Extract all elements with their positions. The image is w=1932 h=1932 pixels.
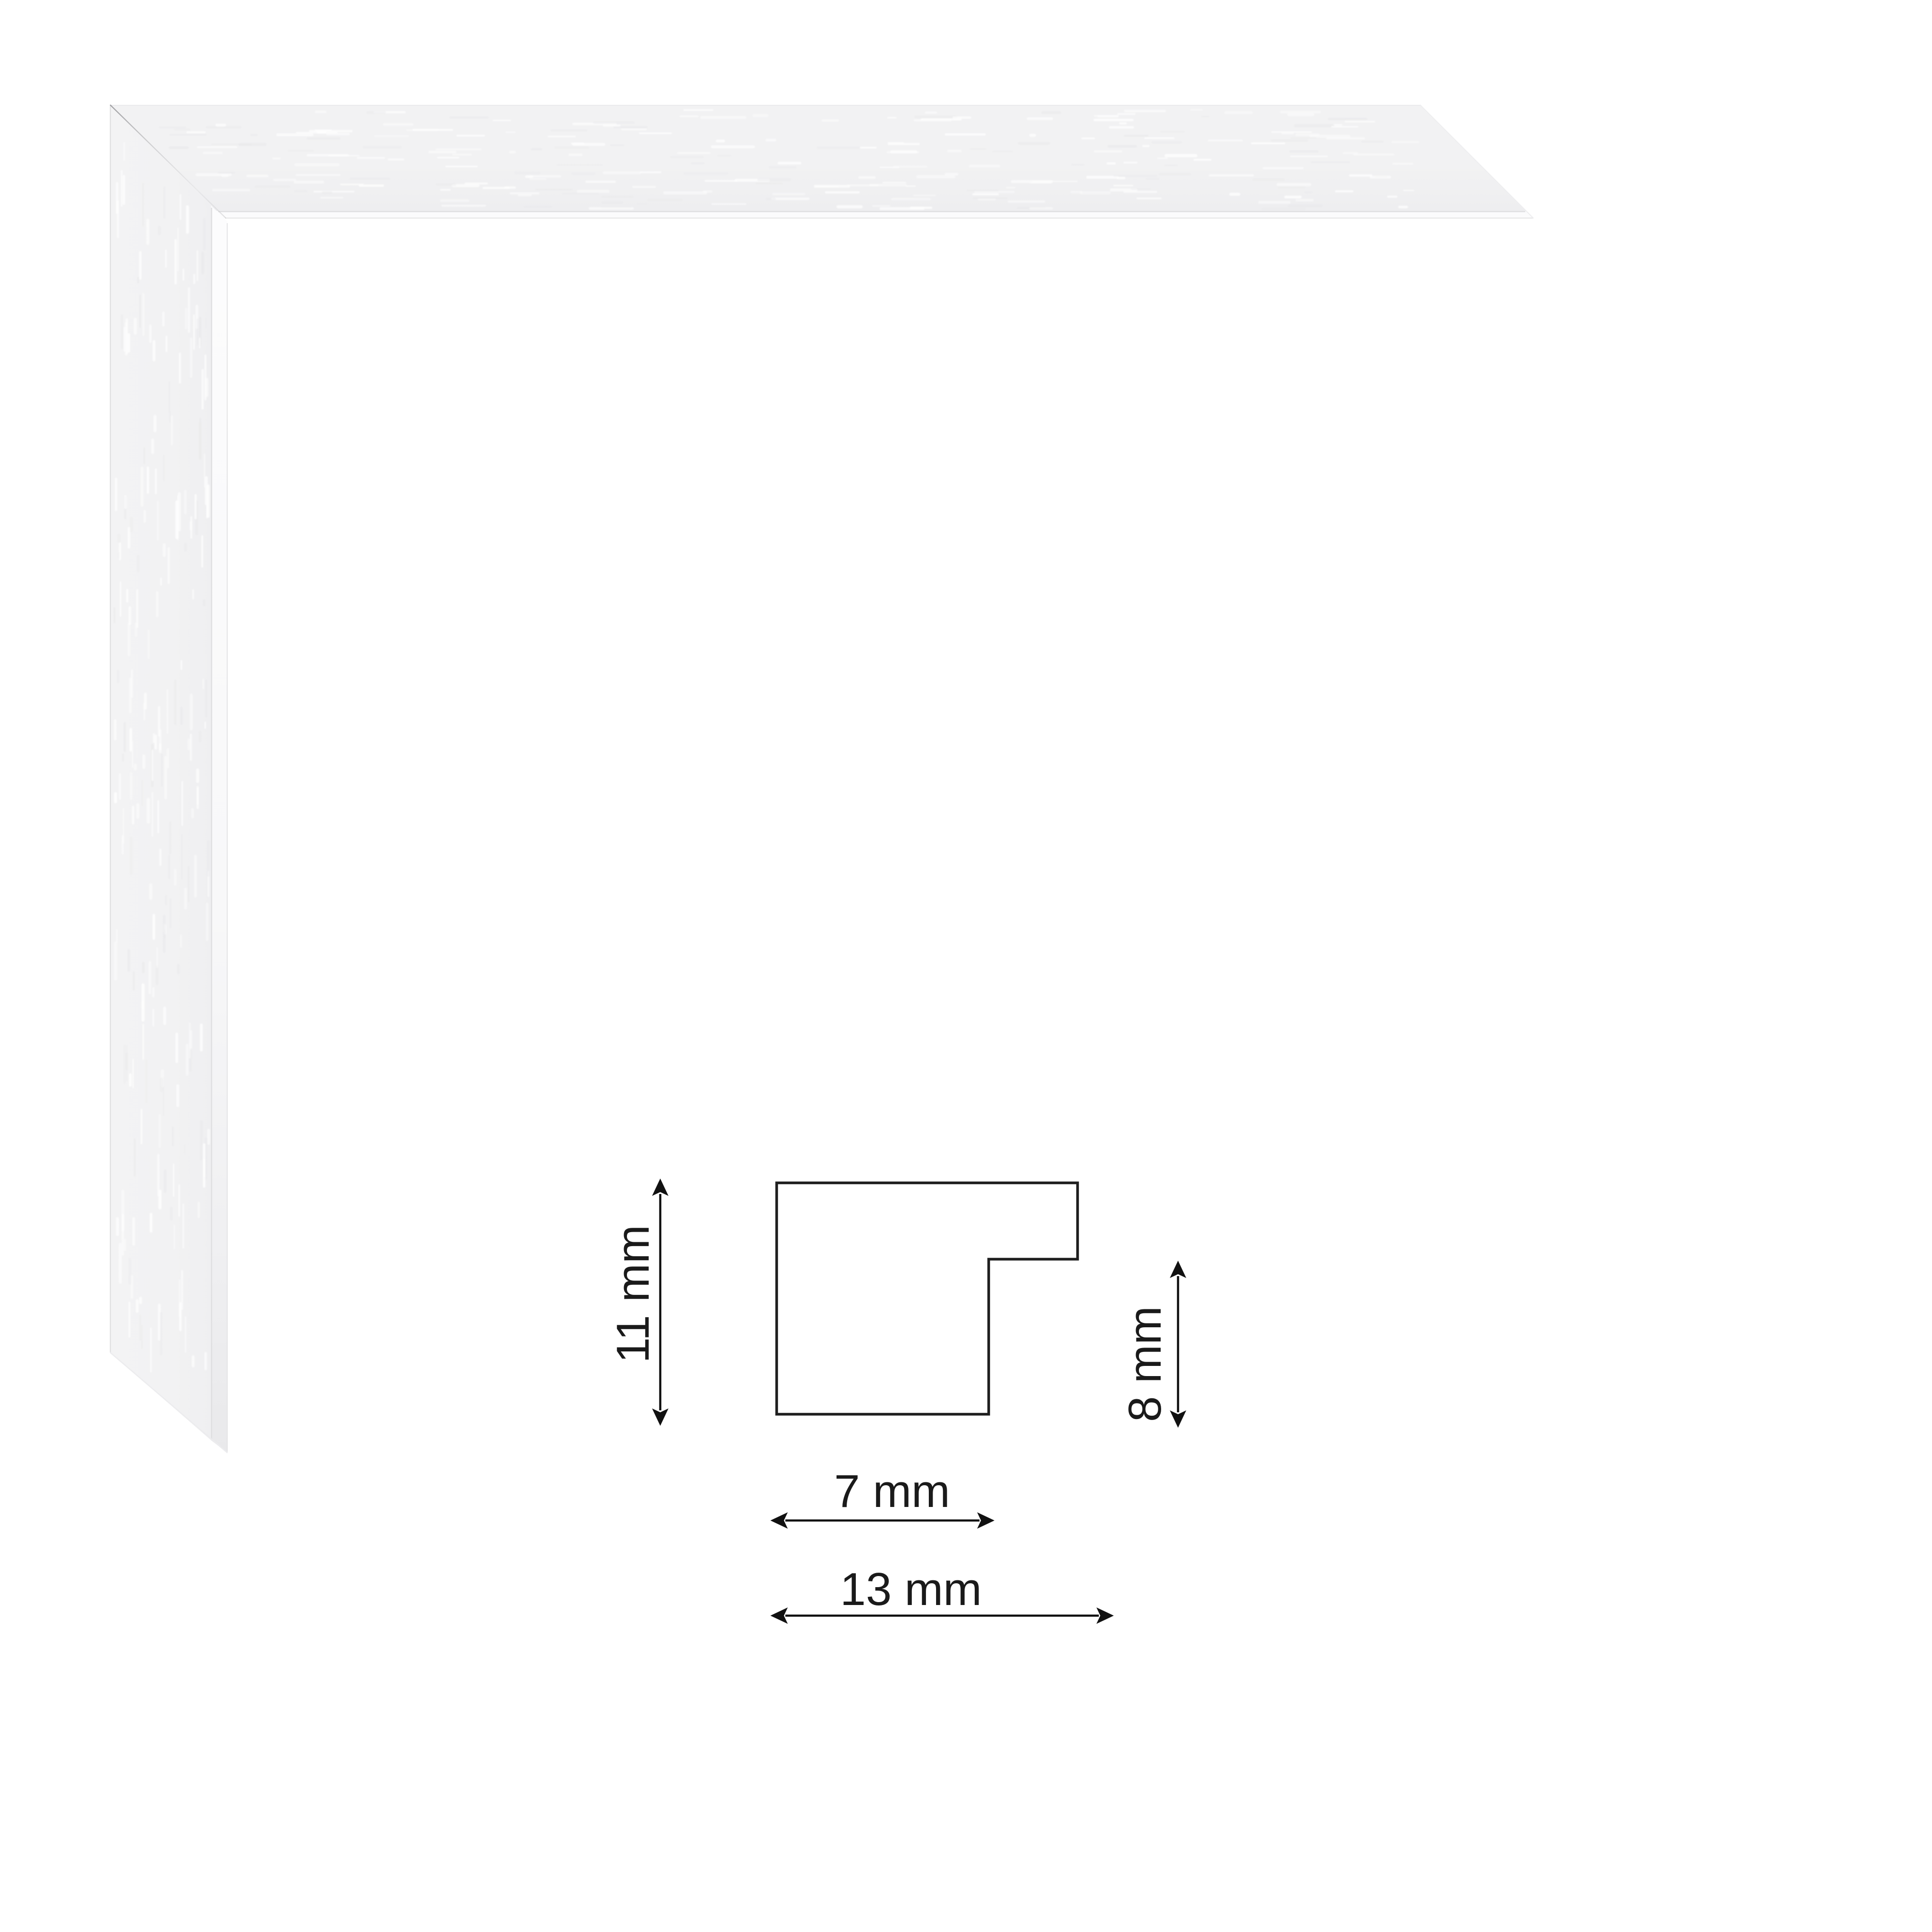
svg-text:11 mm: 11 mm [607,1225,659,1363]
svg-text:7 mm: 7 mm [834,1465,950,1517]
svg-text:8 mm: 8 mm [1119,1306,1171,1422]
svg-text:13 mm: 13 mm [840,1563,981,1615]
